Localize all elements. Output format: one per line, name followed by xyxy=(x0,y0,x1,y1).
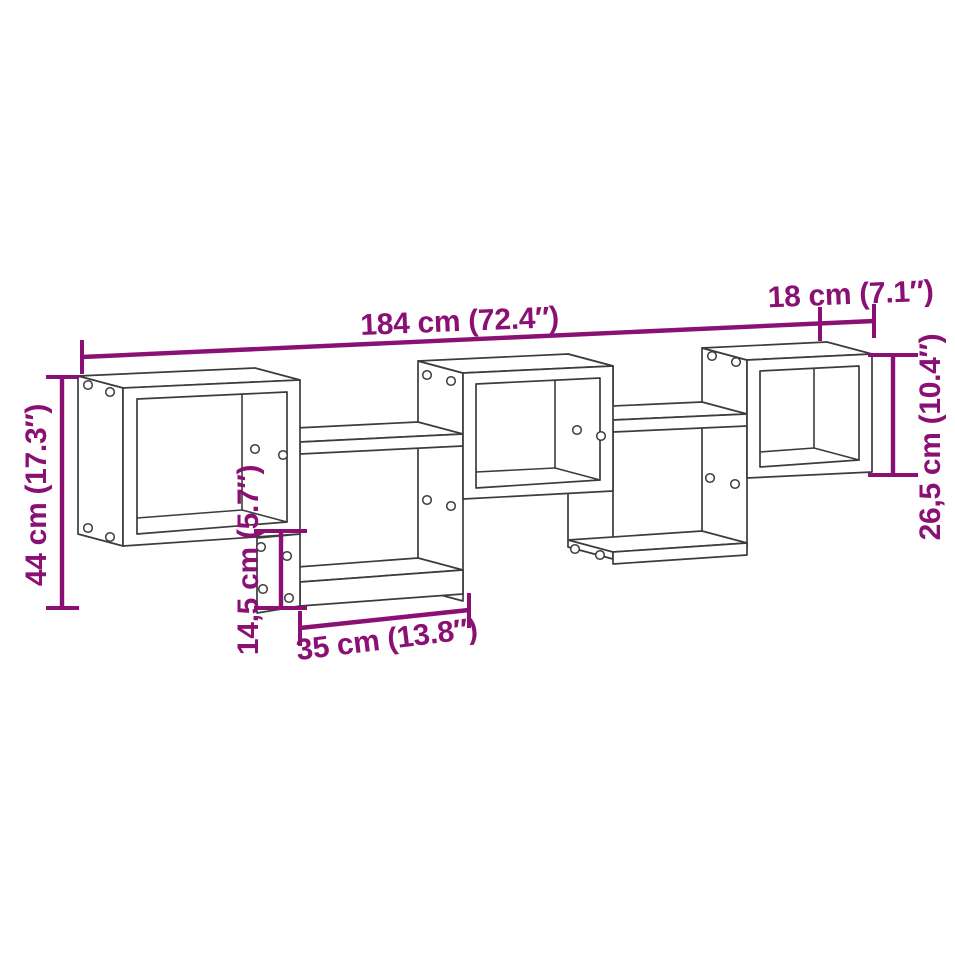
dim-total-height: 44 cm (17.3″) xyxy=(20,377,79,608)
diagram-canvas: 184 cm (72.4″) 18 cm (7.1″) 44 cm (17.3″… xyxy=(0,0,955,955)
cube-left-panel xyxy=(78,376,123,546)
divider-panel-4 xyxy=(702,348,747,548)
dim-label-depth: 18 cm (7.1″) xyxy=(767,275,934,315)
dim-depth: 18 cm (7.1″) xyxy=(767,275,934,338)
dim-cube-height: 26,5 cm (10.4″) xyxy=(868,334,947,541)
cube-opening xyxy=(760,366,859,467)
dim-label-cube-height: 26,5 cm (10.4″) xyxy=(914,334,947,541)
shelf-drawing xyxy=(78,342,872,613)
dim-label-total-height: 44 cm (17.3″) xyxy=(20,404,53,586)
dim-label-drop-height: 14,5 cm (5.7″) xyxy=(232,465,265,655)
diagram-page: 184 cm (72.4″) 18 cm (7.1″) 44 cm (17.3″… xyxy=(0,0,955,955)
